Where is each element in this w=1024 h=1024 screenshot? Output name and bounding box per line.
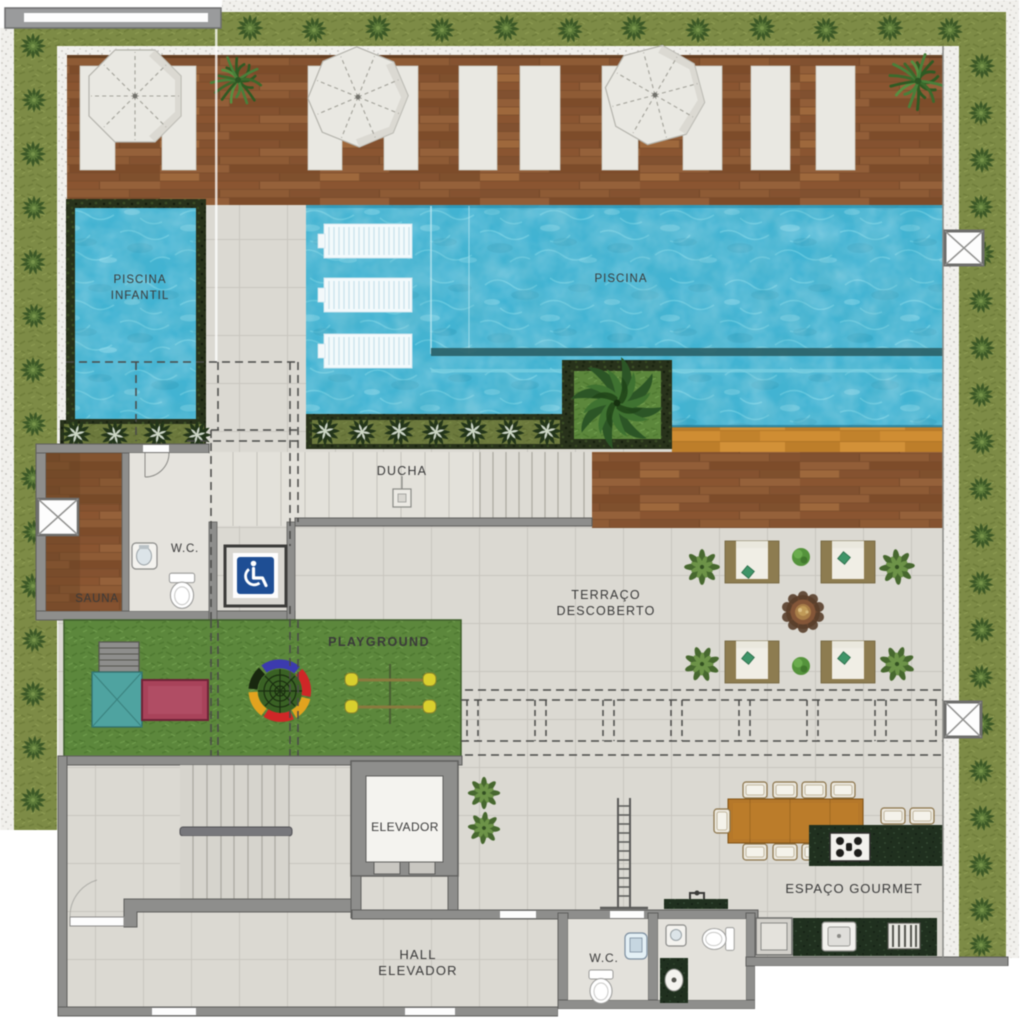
svg-text:DUCHA: DUCHA xyxy=(377,464,427,478)
svg-text:PISCINA: PISCINA xyxy=(113,274,166,286)
svg-text:ELEVADOR: ELEVADOR xyxy=(378,963,457,978)
svg-text:HALL: HALL xyxy=(399,947,436,962)
svg-text:INFANTIL: INFANTIL xyxy=(111,290,169,302)
svg-text:ESPAÇO GOURMET: ESPAÇO GOURMET xyxy=(785,881,922,896)
svg-text:PISCINA: PISCINA xyxy=(594,273,647,285)
svg-text:TERRAÇO: TERRAÇO xyxy=(571,588,641,602)
svg-text:ELEVADOR: ELEVADOR xyxy=(371,820,439,834)
svg-text:SAUNA: SAUNA xyxy=(75,593,119,605)
svg-text:PLAYGROUND: PLAYGROUND xyxy=(328,635,430,649)
svg-text:W.C.: W.C. xyxy=(171,543,199,555)
svg-text:DESCOBERTO: DESCOBERTO xyxy=(556,604,655,618)
svg-text:W.C.: W.C. xyxy=(589,951,618,965)
